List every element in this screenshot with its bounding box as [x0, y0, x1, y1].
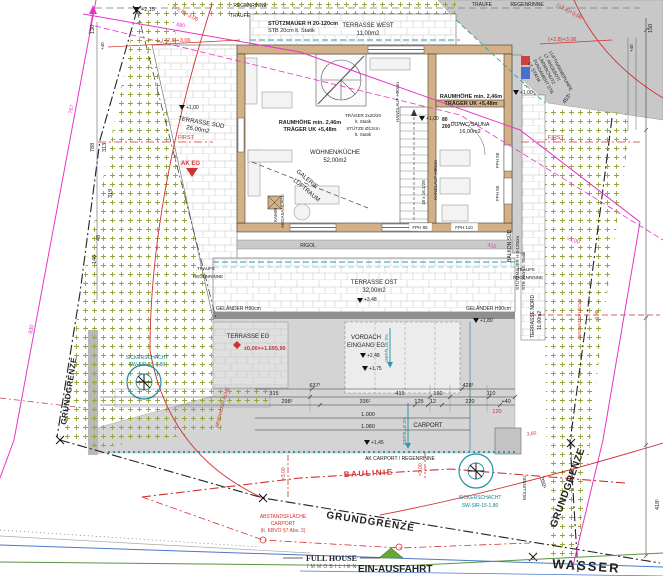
traeger-note-1: TRÄGER 2x20/20: [345, 112, 382, 118]
regenrinne-mid-right: REGENRINNE: [513, 275, 543, 280]
dim-140: 140: [92, 255, 98, 264]
traeger-uk-right: TRÄGER UK +5,48m: [444, 100, 497, 107]
kamin-line2: ABGASANLAGE: [280, 194, 285, 228]
dim-336: 336¹: [359, 399, 370, 405]
sauna-area: 16,00m2: [459, 129, 480, 135]
terrasse-ost-area: 32,00m2: [362, 288, 386, 294]
dim-1000: 1.000: [361, 412, 375, 418]
dim-300-right: =3,00: [418, 463, 424, 476]
regenrinne-mid-left: REGENRINNE: [193, 274, 223, 279]
vordach-line1: VORDACH: [351, 335, 381, 341]
grundgrenze-label-bottom: GRUNDGRENZE: [326, 510, 416, 534]
first-label-right: FIRST: [548, 135, 565, 141]
wohnen-name: WOHNEN/KÜCHE: [310, 149, 360, 156]
traufe-mid-left: TRAUFE: [197, 266, 215, 271]
terrasse-west-name: TERRASSE WEST: [342, 23, 394, 29]
dim-150: 150: [648, 24, 654, 33]
legend-blue-mark: [521, 67, 530, 79]
stuetzmauer-top-note-1: STÜTZMAUER H 20-120cm: [268, 20, 338, 27]
rigol-label: RIGOL: [300, 243, 316, 249]
wohnen-area: 52,00m2: [323, 158, 347, 164]
gefaelle-carport: GEFÄLLE 2%: [401, 417, 407, 445]
sickerschacht-right: [459, 454, 493, 488]
stuetze-note-2: lt. Statik: [355, 132, 372, 137]
sauna-name: DU/WC/SAUNA: [450, 122, 489, 128]
house-footprint: [237, 45, 512, 249]
terrasse-ost-name: TERRASSE OST: [351, 280, 398, 286]
wall-base-band: [213, 312, 515, 319]
baulinie-label: BAULINIE: [344, 467, 394, 479]
stuetze-note-1: STÜTZE Ø13cm: [346, 125, 380, 131]
dim-319: 319: [108, 189, 114, 198]
dim-298: 298¹: [281, 399, 292, 405]
level-100-door: +1,00: [426, 116, 439, 122]
level-348: +3,48: [364, 297, 377, 303]
traufe-mid-right: TRAUFE: [517, 267, 535, 272]
fph50-upper: FPH 50: [495, 152, 500, 168]
dim-110: 110: [487, 391, 496, 397]
fph85-label: FPH 85: [412, 225, 428, 230]
raumhoehe-left: RAUMHÖHE min. 2,46m: [279, 119, 341, 126]
terrasse-eg-name: TERRASSE EG: [227, 334, 270, 340]
muellinsel-box: [495, 428, 521, 454]
rigol-strip: [237, 240, 512, 249]
spiral-stair: [316, 54, 366, 106]
raumhoehe-right: RAUMHÖHE min. 2,46m: [440, 93, 502, 100]
terrasse-eg-slab: [213, 322, 288, 388]
gefaelle-vordach: GEFÄLLE 2%: [383, 334, 389, 362]
dim-120-red: 120: [492, 409, 501, 415]
dim-313: 313: [102, 143, 108, 152]
dim-300-left: =3,00: [281, 467, 287, 480]
sickerschacht-left-2: SW-SIR-15-1,80: [129, 362, 166, 368]
dim-480-mag: 480: [176, 22, 186, 29]
traeger-note-2: lt. Statik: [355, 119, 372, 124]
level-100-balkon: +1,00: [520, 90, 533, 96]
handlauf-stair: HANDLAUF H90cm: [433, 160, 438, 200]
ein-ausfahrt-label: EIN-AUSFAHRT: [358, 564, 432, 575]
logo-sub: IMMOBILIEN: [307, 564, 358, 570]
dim-415: 415: [395, 391, 404, 397]
terrasse-nord-name: TERRASSE NORD: [530, 295, 536, 338]
level-100-terrasse: +1,00: [186, 105, 199, 111]
traeger-uk-left: TRÄGER UK +5,48m: [283, 126, 336, 133]
ein-ausfahrt-triangle-icon: [379, 548, 403, 558]
dim-300-right-side: =3,00: [594, 310, 599, 322]
sickerschacht-right-1: SICKERSCHACHT: [459, 495, 502, 501]
level-215: +2,15: [141, 7, 155, 13]
site-plan: REGENRINNE TRAUFE TRAUFE REGENRINNE STÜT…: [0, 0, 663, 576]
door-width: 80: [442, 117, 448, 123]
dim-130: 130: [90, 25, 96, 34]
muellinsel-label: MÜLLINSEL: [521, 474, 527, 500]
kamin-line1: KAMIN: [273, 208, 278, 222]
dim-160: 160: [433, 391, 442, 397]
abstand-line2: CARPORT: [271, 521, 295, 527]
dim-360-red: 3,60: [526, 430, 537, 438]
sickerschacht-left-1: SICKERSCHACHT: [126, 355, 169, 361]
traufe-label-top-left: TRAUFE: [230, 13, 251, 19]
dim-125: 125: [414, 399, 423, 405]
vordach-line2: EINGANG EG: [347, 343, 385, 349]
level-306-left: (+2,8)+3,06: [162, 38, 190, 44]
sickerschacht-right-2: SW-SIR-15-1,80: [462, 503, 499, 509]
dim-40-topright: +40: [629, 44, 634, 52]
dim-40-carport: +40: [501, 399, 510, 405]
dim-40-left: +40: [100, 42, 105, 50]
first-label-left: FIRST: [178, 135, 195, 141]
door-height: 200: [442, 124, 451, 130]
terrasse-eg-level: ±0,00=+1.695,90: [244, 346, 286, 352]
dim-428: 428¹: [462, 383, 473, 389]
terrasse-nord-area: 11,00m2: [537, 311, 543, 330]
level-175: +1,75: [369, 366, 382, 372]
stuetzmauer-right-1: STÜTZMAUER H 0-120cm: [514, 236, 520, 290]
dim-315: 315: [269, 391, 278, 397]
dim-1080: 1.080: [361, 424, 375, 430]
stuetzmauer-top-note-2: STB 20cm lt. Statik: [268, 28, 315, 34]
regenrinne-label-top-right: REGENRINNE: [510, 2, 544, 8]
dim-788: 788: [90, 143, 96, 152]
dim-48: 48: [96, 235, 102, 241]
carport-label: CARPORT: [413, 423, 443, 429]
abstand-vertical-right: ABSTANDSFLÄCHE: [576, 298, 582, 340]
level-306-right: (+2,8)+3,06: [548, 37, 576, 43]
stair-note: 18 x 16,1/28: [421, 180, 426, 205]
handlauf-top: HANDLAUF H90cm: [395, 82, 400, 122]
level-145: +1,45: [371, 440, 384, 446]
traufe-label-top-right: TRAUFE: [472, 2, 493, 8]
abstand-line3: (lt. KBVO §7 Abs. 3): [261, 528, 306, 534]
level-248: +2,48: [367, 353, 380, 359]
gelaender-left: GELÄNDER H90cm: [216, 305, 261, 312]
dim-418: 418¹: [655, 499, 661, 510]
abstand-line1: ABSTANDSFLÄCHE: [260, 513, 307, 520]
balkon-slab: [512, 55, 522, 253]
terrasse-west-area: 11,00m2: [357, 31, 381, 37]
dim-350: 350¹: [538, 477, 547, 489]
dim-12: 12: [430, 399, 436, 405]
vordach-area: [345, 322, 460, 393]
balkon-sued-label: BALKON SÜD: [506, 229, 513, 262]
wasser-label: WASSER: [552, 556, 621, 576]
fph50-lower: FPH 50: [495, 185, 500, 201]
dim-637: 637¹: [309, 383, 320, 389]
fph110-label: FPH 110: [455, 225, 473, 230]
gelaender-right: GELÄNDER H90cm: [466, 305, 511, 312]
dim-220: 220: [465, 399, 474, 405]
regenrinne-label-top-left: REGENRINNE: [233, 3, 267, 9]
ak-carport-label: AK CARPORT / REGENRINNE: [365, 456, 435, 462]
ak-eg-label: AK EG: [181, 161, 200, 167]
logo-name: FULL HOUSE: [306, 554, 357, 563]
level-180: +1,80: [480, 318, 493, 324]
